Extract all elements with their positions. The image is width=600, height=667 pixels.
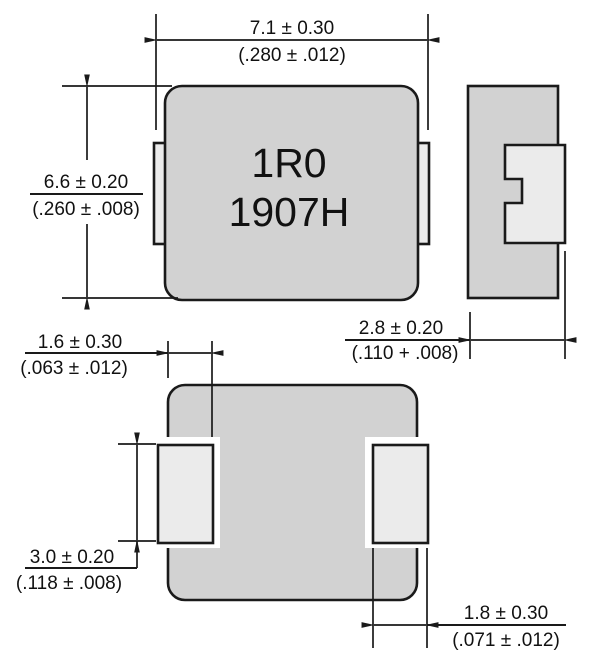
dim-body-height-mm: 6.6 ± 0.20 — [44, 172, 128, 193]
drawing-canvas: 1R0 1907H 7.1 ± 0.30 (.280 ± .012) 6.6 ±… — [0, 0, 600, 667]
dim-body-width-mm: 7.1 ± 0.30 — [250, 18, 334, 39]
side-view — [468, 86, 565, 298]
dim-terminal-height: 3.0 ± 0.20 (.118 ± .008) — [16, 444, 156, 594]
dimension-drawing: 1R0 1907H 7.1 ± 0.30 (.280 ± .012) 6.6 ±… — [0, 0, 600, 667]
dim-terminal-width-mm: 1.8 ± 0.30 — [464, 603, 548, 624]
dim-terminal-width-inch: (.071 ± .012) — [452, 630, 560, 651]
dim-terminal-height-inch: (.118 ± .008) — [16, 573, 122, 594]
dim-body-width-inch: (.280 ± .012) — [238, 45, 346, 66]
dim-terminal-inset-mm: 1.6 ± 0.30 — [38, 332, 122, 353]
dim-body-thickness-mm: 2.8 ± 0.20 — [359, 318, 443, 339]
front-view: 1R0 1907H — [154, 86, 429, 300]
part-marking-line1: 1R0 — [251, 140, 326, 186]
bottom-view — [158, 385, 428, 600]
part-marking-line2: 1907H — [229, 189, 350, 235]
dim-terminal-height-mm: 3.0 ± 0.20 — [30, 547, 114, 568]
bottom-left-pad — [158, 445, 213, 543]
dim-terminal-inset-inch: (.063 ± .012) — [20, 358, 128, 379]
dim-body-thickness-inch: (.110 + .008) — [352, 343, 459, 364]
bottom-right-pad — [373, 445, 428, 543]
dim-body-height-inch: (.260 ± .008) — [32, 199, 140, 220]
